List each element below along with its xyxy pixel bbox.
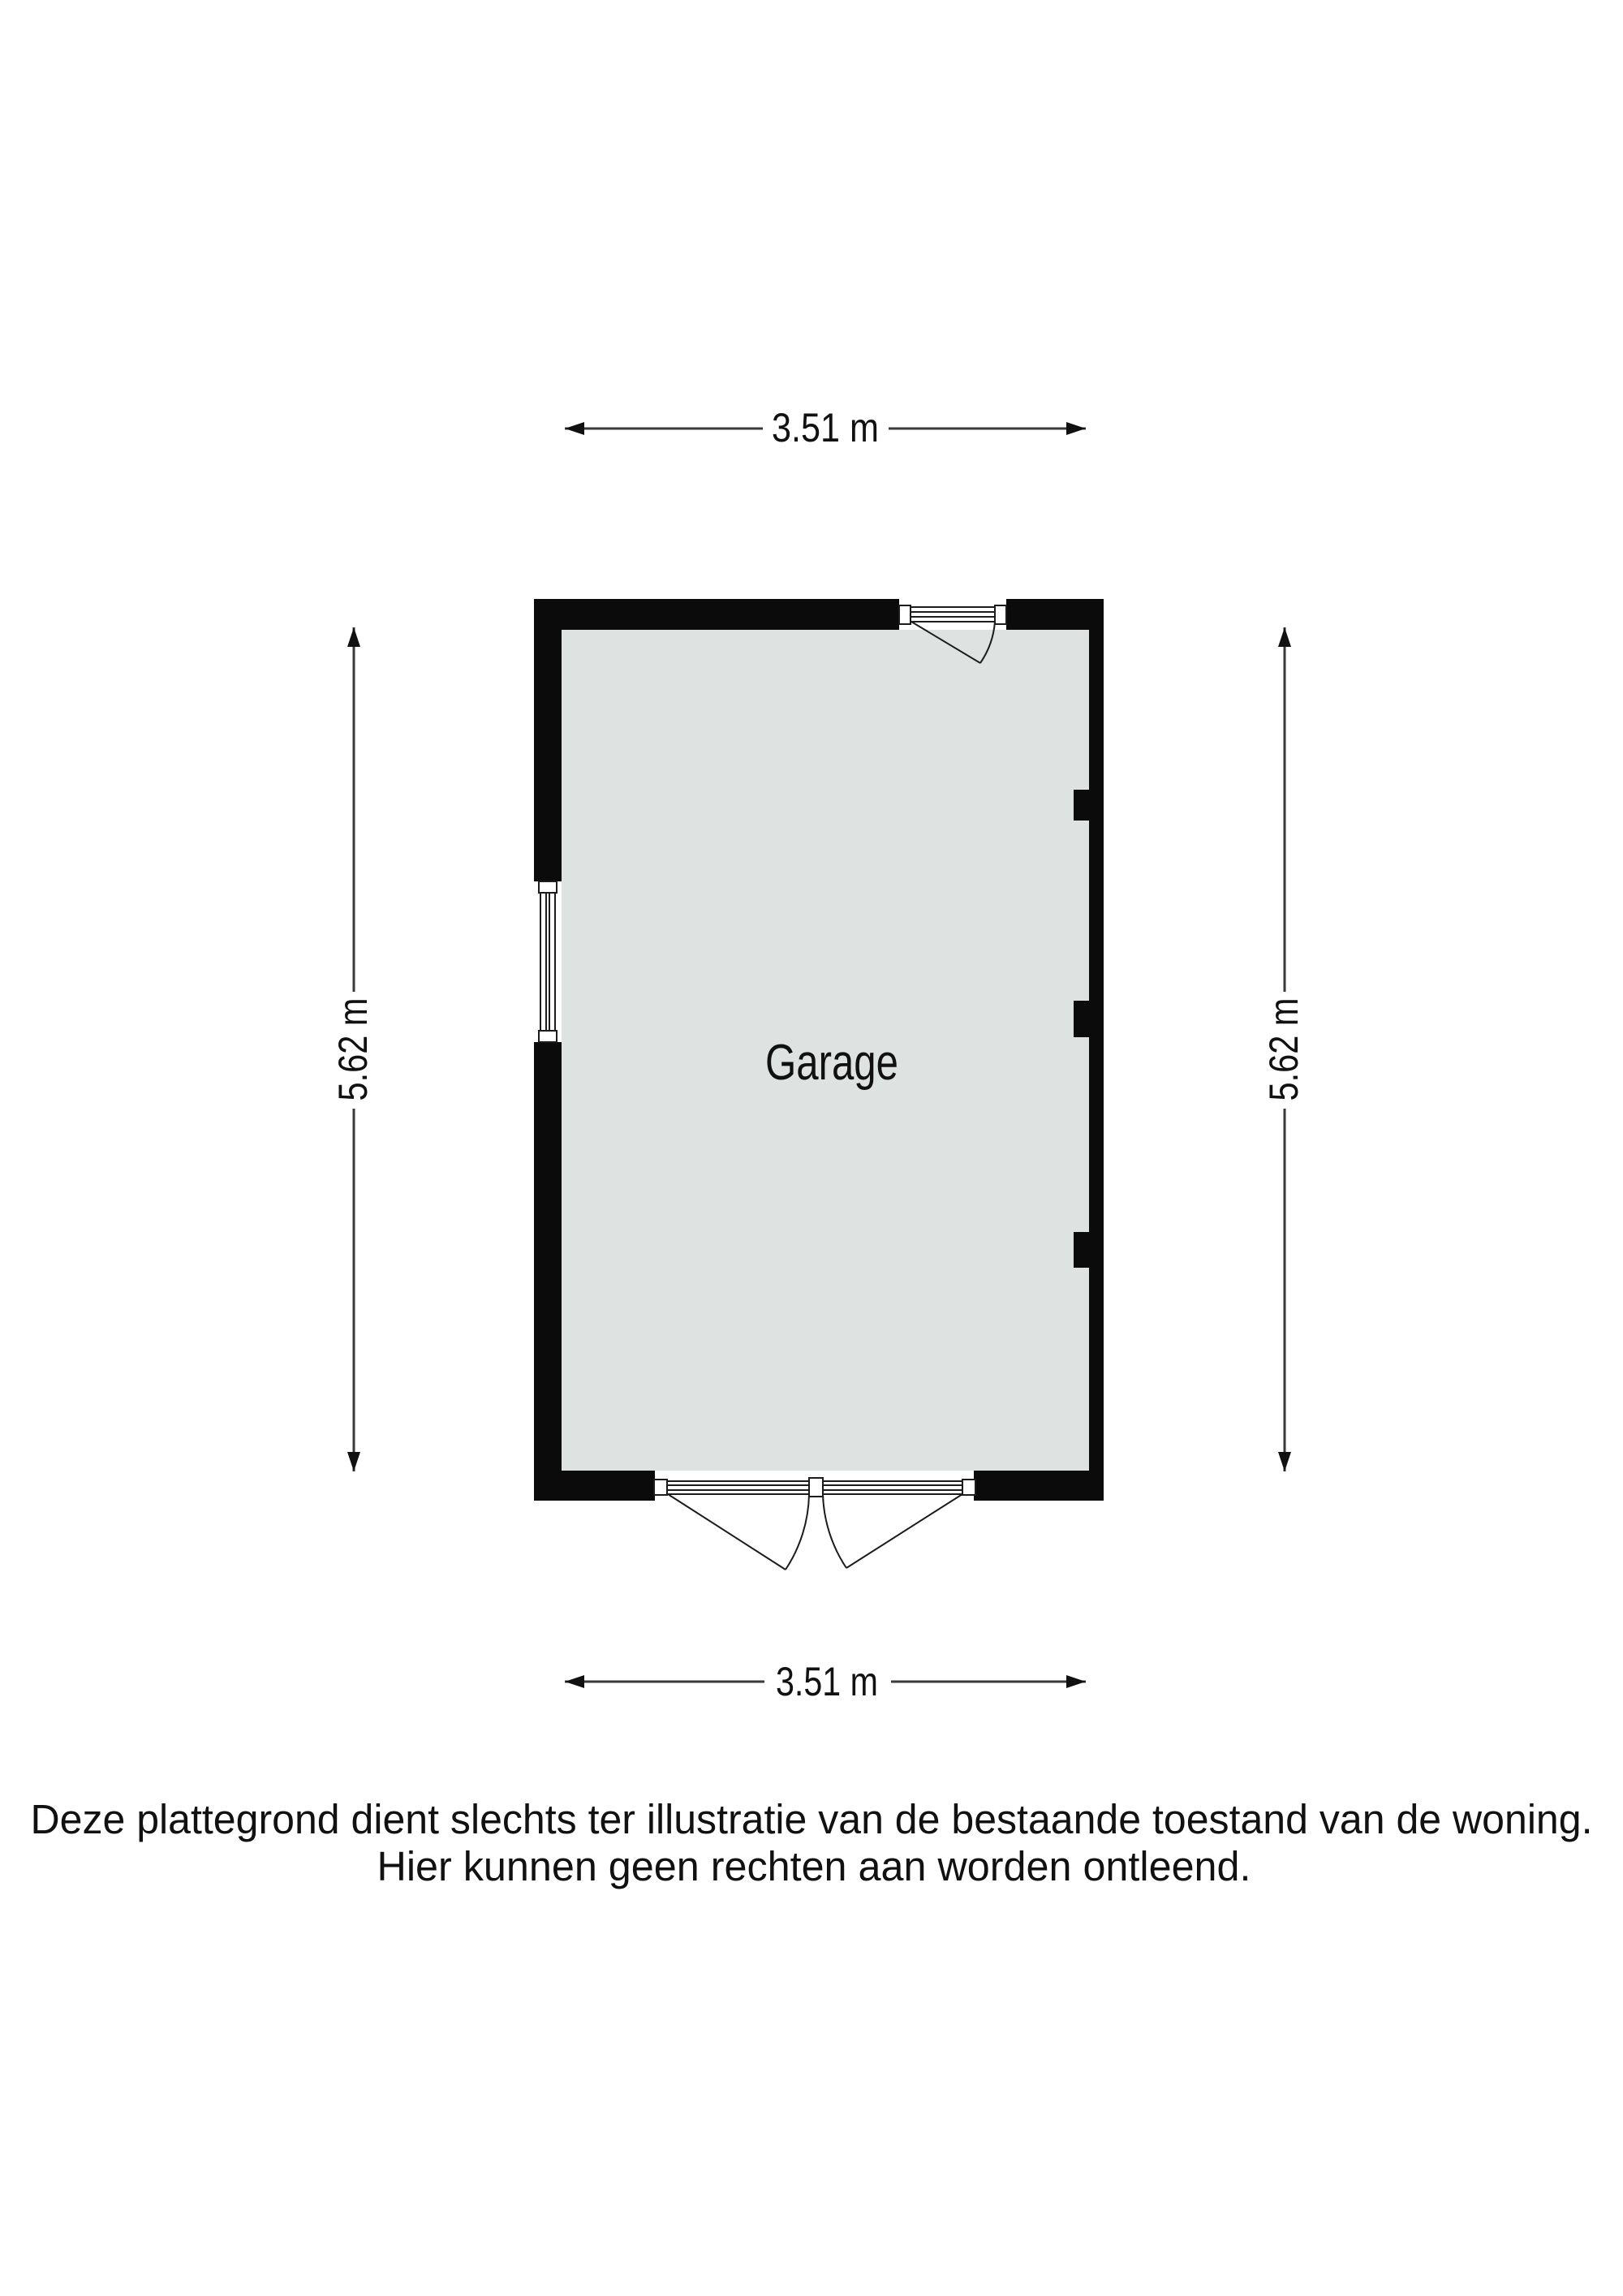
arrow-down-icon	[347, 1452, 360, 1471]
dimension-label-right-height: 5.62 m	[1261, 998, 1307, 1101]
door-bottom-right-swing-arc	[823, 1494, 846, 1568]
arrow-left-icon	[565, 1675, 584, 1688]
door-top-panel	[911, 607, 995, 622]
door-bottom-frame-right	[962, 1480, 975, 1495]
window-frame-bottom	[539, 1031, 557, 1042]
wall-left-lower-segment	[534, 1042, 562, 1501]
wall-left-upper-segment	[534, 599, 562, 881]
arrow-right-icon	[1066, 422, 1086, 435]
wall-right	[1089, 599, 1104, 1501]
door-bottom-right-leaf	[846, 1494, 962, 1568]
window-glazing	[540, 893, 555, 1031]
floorplan-drawing: 3.51 m 3.51 m 5.62 m 5.62 m Garage Deze …	[0, 0, 1623, 2296]
window-left-wall	[539, 881, 557, 1042]
door-top-frame-left	[899, 605, 911, 624]
door-bottom-left-leaf	[668, 1494, 786, 1570]
dimension-label-left-height: 5.62 m	[330, 998, 376, 1101]
door-top-frame-right	[995, 605, 1006, 624]
disclaimer-line-1: Deze plattegrond dient slechts ter illus…	[31, 1796, 1593, 1842]
dimension-label-top-width: 3.51 m	[772, 405, 879, 450]
door-bottom-center-post	[809, 1478, 823, 1497]
wall-pilaster-middle	[1074, 1001, 1089, 1037]
wall-pilaster-top	[1074, 790, 1089, 821]
dimension-label-bottom-width: 3.51 m	[776, 1659, 878, 1704]
disclaimer-line-2: Hier kunnen geen rechten aan worden ontl…	[377, 1843, 1251, 1889]
arrow-left-icon	[565, 422, 584, 435]
arrow-down-icon	[1278, 1452, 1291, 1471]
door-bottom-frame-left	[654, 1480, 667, 1495]
arrow-up-icon	[347, 627, 360, 647]
door-bottom-left-swing-arc	[786, 1494, 809, 1570]
wall-bottom-left-segment	[534, 1471, 655, 1501]
floorplan-page: 3.51 m 3.51 m 5.62 m 5.62 m Garage Deze …	[0, 0, 1623, 2296]
wall-pilaster-bottom	[1074, 1232, 1089, 1268]
window-frame-top	[539, 881, 557, 893]
room-label: Garage	[765, 1035, 898, 1091]
arrow-right-icon	[1066, 1675, 1086, 1688]
door-bottom-panel-right	[823, 1481, 962, 1494]
wall-bottom-right-segment	[974, 1471, 1104, 1501]
arrow-up-icon	[1278, 627, 1291, 647]
double-door-bottom	[654, 1478, 975, 1570]
wall-top-left-segment	[534, 599, 899, 630]
door-bottom-panel-left	[667, 1481, 809, 1494]
